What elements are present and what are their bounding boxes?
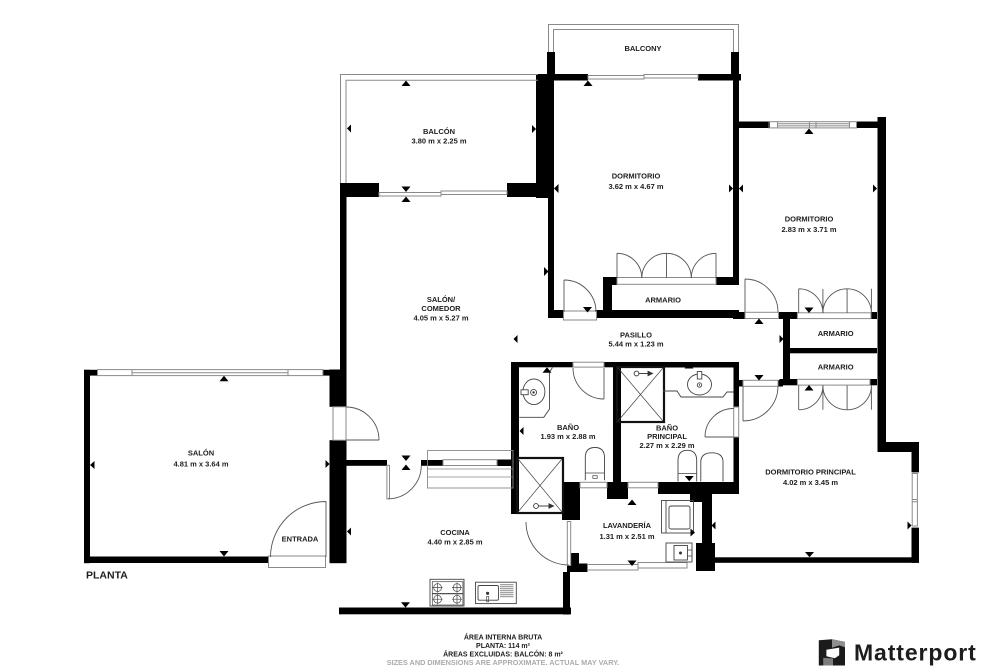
svg-text:DORMITORIO PRINCIPAL: DORMITORIO PRINCIPAL [765,468,856,477]
svg-text:2.83 m x 3.71 m: 2.83 m x 3.71 m [781,225,836,234]
svg-text:2.27 m x 2.29 m: 2.27 m x 2.29 m [639,441,694,450]
svg-text:DORMITORIO: DORMITORIO [785,214,834,223]
svg-text:4.81 m x 3.64 m: 4.81 m x 3.64 m [173,460,228,469]
svg-text:4.05 m x 5.27 m: 4.05 m x 5.27 m [413,314,468,323]
svg-text:PLANTA: 114 m²: PLANTA: 114 m² [476,643,531,650]
svg-text:5.44 m x 1.23 m: 5.44 m x 1.23 m [608,340,663,349]
svg-text:ARMARIO: ARMARIO [818,329,854,338]
svg-text:COCINA: COCINA [440,528,470,537]
svg-text:BALCONY: BALCONY [624,44,661,53]
svg-text:Matterport: Matterport [854,640,977,666]
svg-text:LAVANDERÍA: LAVANDERÍA [603,521,652,530]
svg-text:1.93 m x 2.88 m: 1.93 m x 2.88 m [540,432,595,441]
svg-text:ARMARIO: ARMARIO [818,362,854,371]
svg-text:SIZES AND DIMENSIONS ARE APPRO: SIZES AND DIMENSIONS ARE APPROXIMATE. AC… [387,658,620,666]
svg-text:PRINCIPAL: PRINCIPAL [647,432,687,441]
svg-text:SALÓN: SALÓN [188,449,214,458]
svg-text:BAÑO: BAÑO [557,423,579,432]
svg-text:1.31 m x 2.51 m: 1.31 m x 2.51 m [599,532,654,541]
svg-text:PASILLO: PASILLO [620,330,652,339]
svg-text:SALÓN/: SALÓN/ [427,295,456,304]
svg-text:ENTRADA: ENTRADA [282,534,319,543]
svg-text:ÁREA INTERNA BRUTA: ÁREA INTERNA BRUTA [464,633,542,642]
svg-text:4.40 m x 2.85 m: 4.40 m x 2.85 m [427,538,482,547]
svg-text:DORMITORIO: DORMITORIO [612,172,661,181]
svg-text:ARMARIO: ARMARIO [645,295,681,304]
svg-text:4.02 m x 3.45 m: 4.02 m x 3.45 m [783,478,838,487]
svg-text:PLANTA: PLANTA [86,570,128,582]
svg-text:3.80 m x 2.25 m: 3.80 m x 2.25 m [411,137,466,146]
svg-text:3.62 m x 4.67 m: 3.62 m x 4.67 m [608,182,663,191]
svg-text:BALCÓN: BALCÓN [423,127,455,136]
svg-text:COMEDOR: COMEDOR [421,304,461,313]
